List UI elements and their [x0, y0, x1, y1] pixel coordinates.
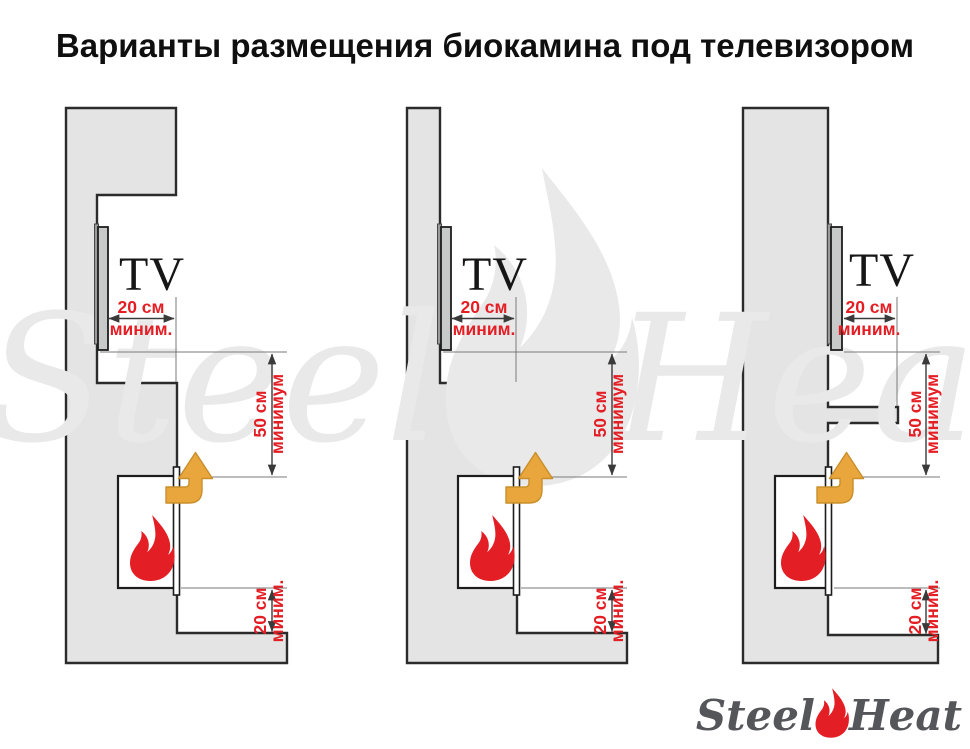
dim-label: минимум — [922, 374, 942, 454]
dim-label: миним. — [922, 580, 942, 643]
fireplace-glass — [174, 467, 180, 595]
dim-label: миним. — [453, 319, 516, 339]
fireplace-glass — [514, 467, 520, 595]
logo-flame-icon — [814, 687, 850, 739]
dim-label: миним. — [607, 580, 627, 643]
logo-word-steel: Steel — [696, 695, 815, 737]
tv-label: TV — [119, 248, 185, 301]
infographic-canvas: Steel Heat TV 20 см миним. 50 см минимум… — [0, 0, 970, 749]
dim-label: миним. — [110, 319, 173, 339]
dim-label: миним. — [267, 580, 287, 643]
dim-label: 20 см — [845, 297, 892, 317]
dim-label: 20 см — [460, 297, 507, 317]
details-layer: TV 20 см миним. 50 см минимум 20 см мини… — [0, 0, 970, 749]
dim-label: миним. — [838, 319, 901, 339]
page-title: Варианты размещения биокамина под телеви… — [0, 27, 970, 65]
tv-label: TV — [462, 248, 528, 301]
diagram-variant-1: TV 20 см миним. 50 см минимум 20 см мини… — [95, 224, 288, 642]
tv-panel — [98, 227, 108, 350]
fireplace-glass — [826, 467, 832, 595]
tv-label: TV — [849, 244, 915, 297]
logo-word-heat: Heat — [849, 695, 962, 737]
dim-label: минимум — [607, 374, 627, 454]
dim-label: 20 см — [117, 297, 164, 317]
brand-logo: Steel Heat — [696, 687, 962, 745]
diagram-variant-3: TV 20 см миним. 50 см минимум 20 см мини… — [775, 224, 942, 642]
dim-label: минимум — [267, 374, 287, 454]
diagram-variant-2: TV 20 см миним. 50 см минимум 20 см мини… — [438, 224, 628, 642]
tv-panel — [441, 227, 451, 350]
